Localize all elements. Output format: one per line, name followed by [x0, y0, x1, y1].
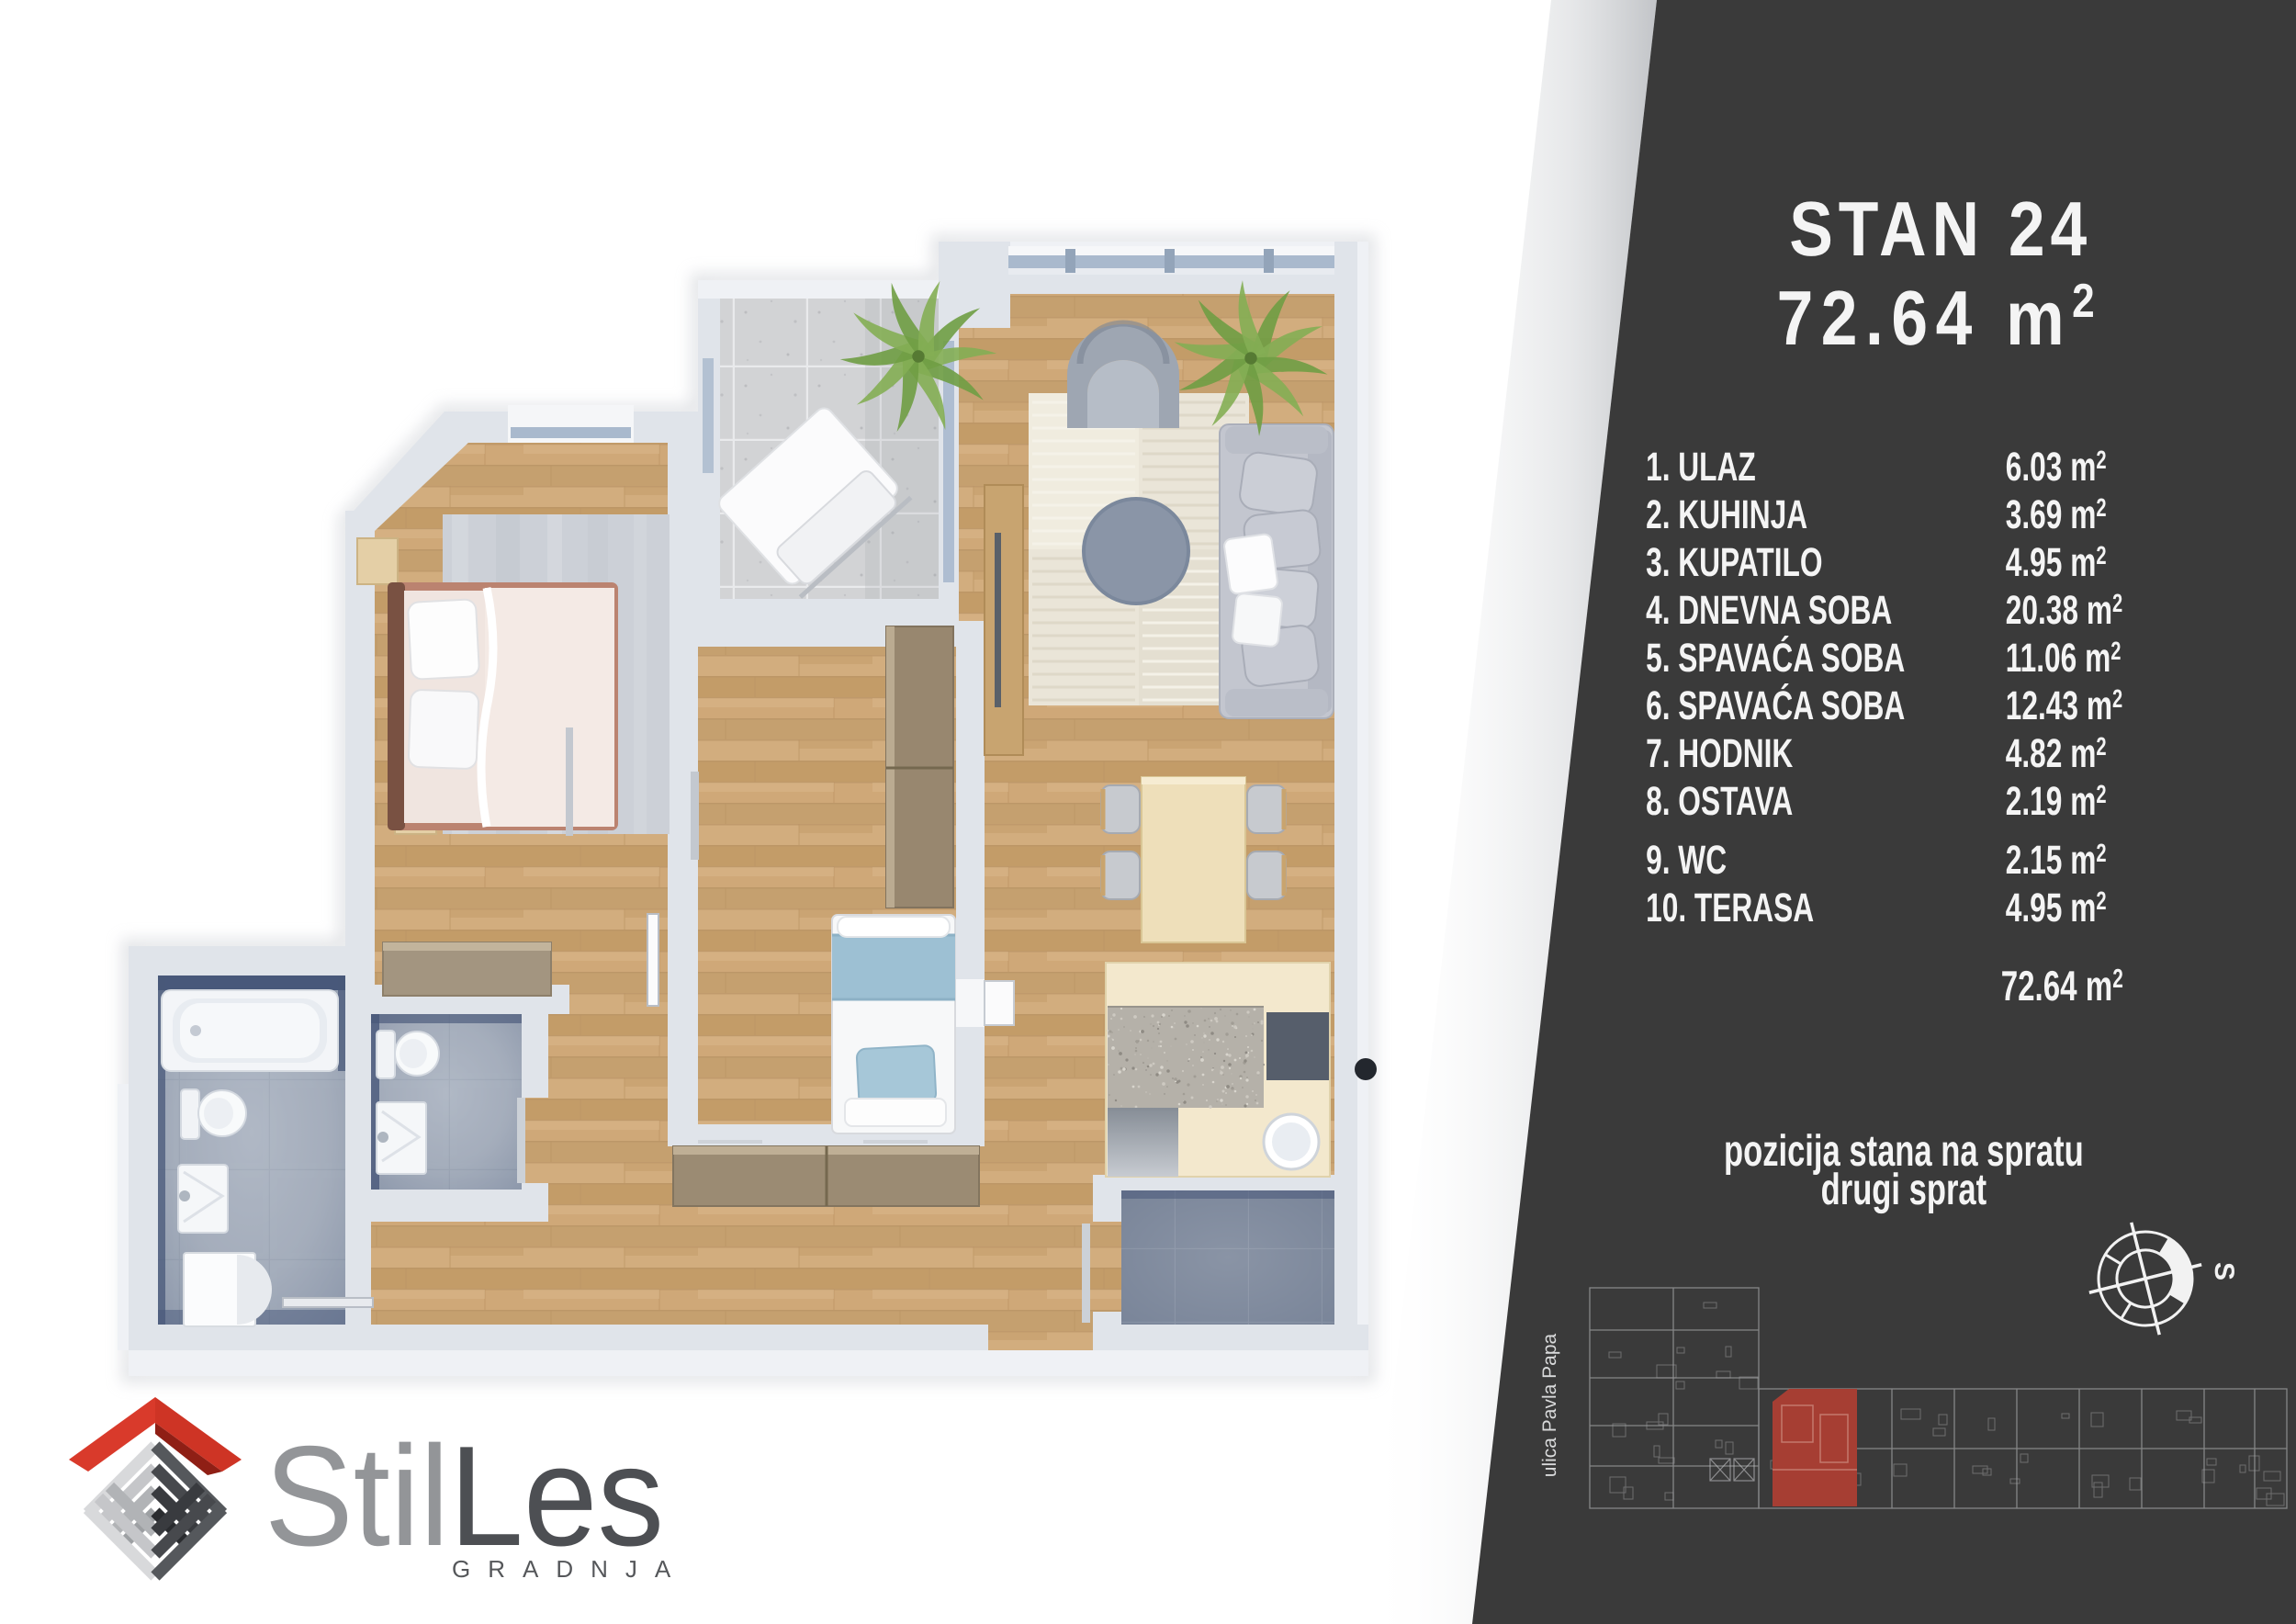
svg-text:10. TERASA: 10. TERASA	[1646, 885, 1814, 930]
svg-text:5. SPAVAĆA SOBA: 5. SPAVAĆA SOBA	[1646, 636, 1905, 681]
svg-text:20.38 m2: 20.38 m2	[2006, 588, 2122, 633]
svg-text:4.82 m2: 4.82 m2	[2006, 731, 2107, 776]
svg-text:12.43 m2: 12.43 m2	[2006, 683, 2122, 728]
svg-text:8. OSTAVA: 8. OSTAVA	[1646, 779, 1793, 824]
svg-text:STAN 24: STAN 24	[1789, 186, 2092, 272]
svg-text:2.15 m2: 2.15 m2	[2006, 838, 2107, 883]
svg-text:4.95 m2: 4.95 m2	[2006, 885, 2107, 930]
svg-text:6. SPAVAĆA SOBA: 6. SPAVAĆA SOBA	[1646, 683, 1905, 728]
svg-text:9. WC: 9. WC	[1646, 838, 1727, 883]
svg-text:GRADNJA: GRADNJA	[452, 1555, 688, 1583]
svg-text:7. HODNIK: 7. HODNIK	[1646, 731, 1793, 776]
svg-text:72.64 m2: 72.64 m2	[2001, 962, 2123, 1009]
svg-text:11.06 m2: 11.06 m2	[2006, 636, 2122, 681]
svg-text:4. DNEVNA SOBA: 4. DNEVNA SOBA	[1646, 588, 1892, 633]
svg-text:3. KUPATILO: 3. KUPATILO	[1646, 540, 1822, 585]
svg-text:drugi sprat: drugi sprat	[1821, 1166, 1987, 1214]
svg-text:2.19 m2: 2.19 m2	[2006, 779, 2107, 824]
svg-text:2. KUHINJA: 2. KUHINJA	[1646, 492, 1807, 537]
svg-text:1. ULAZ: 1. ULAZ	[1646, 445, 1756, 490]
svg-text:3.69 m2: 3.69 m2	[2006, 492, 2107, 537]
svg-text:6.03 m2: 6.03 m2	[2006, 445, 2107, 490]
svg-text:ulica Pavla Papa: ulica Pavla Papa	[1539, 1333, 1560, 1477]
svg-text:StilLes: StilLes	[264, 1416, 664, 1575]
svg-text:4.95 m2: 4.95 m2	[2006, 540, 2107, 585]
svg-text:72.64 m2: 72.64 m2	[1777, 275, 2095, 361]
svg-text:S: S	[2209, 1262, 2239, 1280]
